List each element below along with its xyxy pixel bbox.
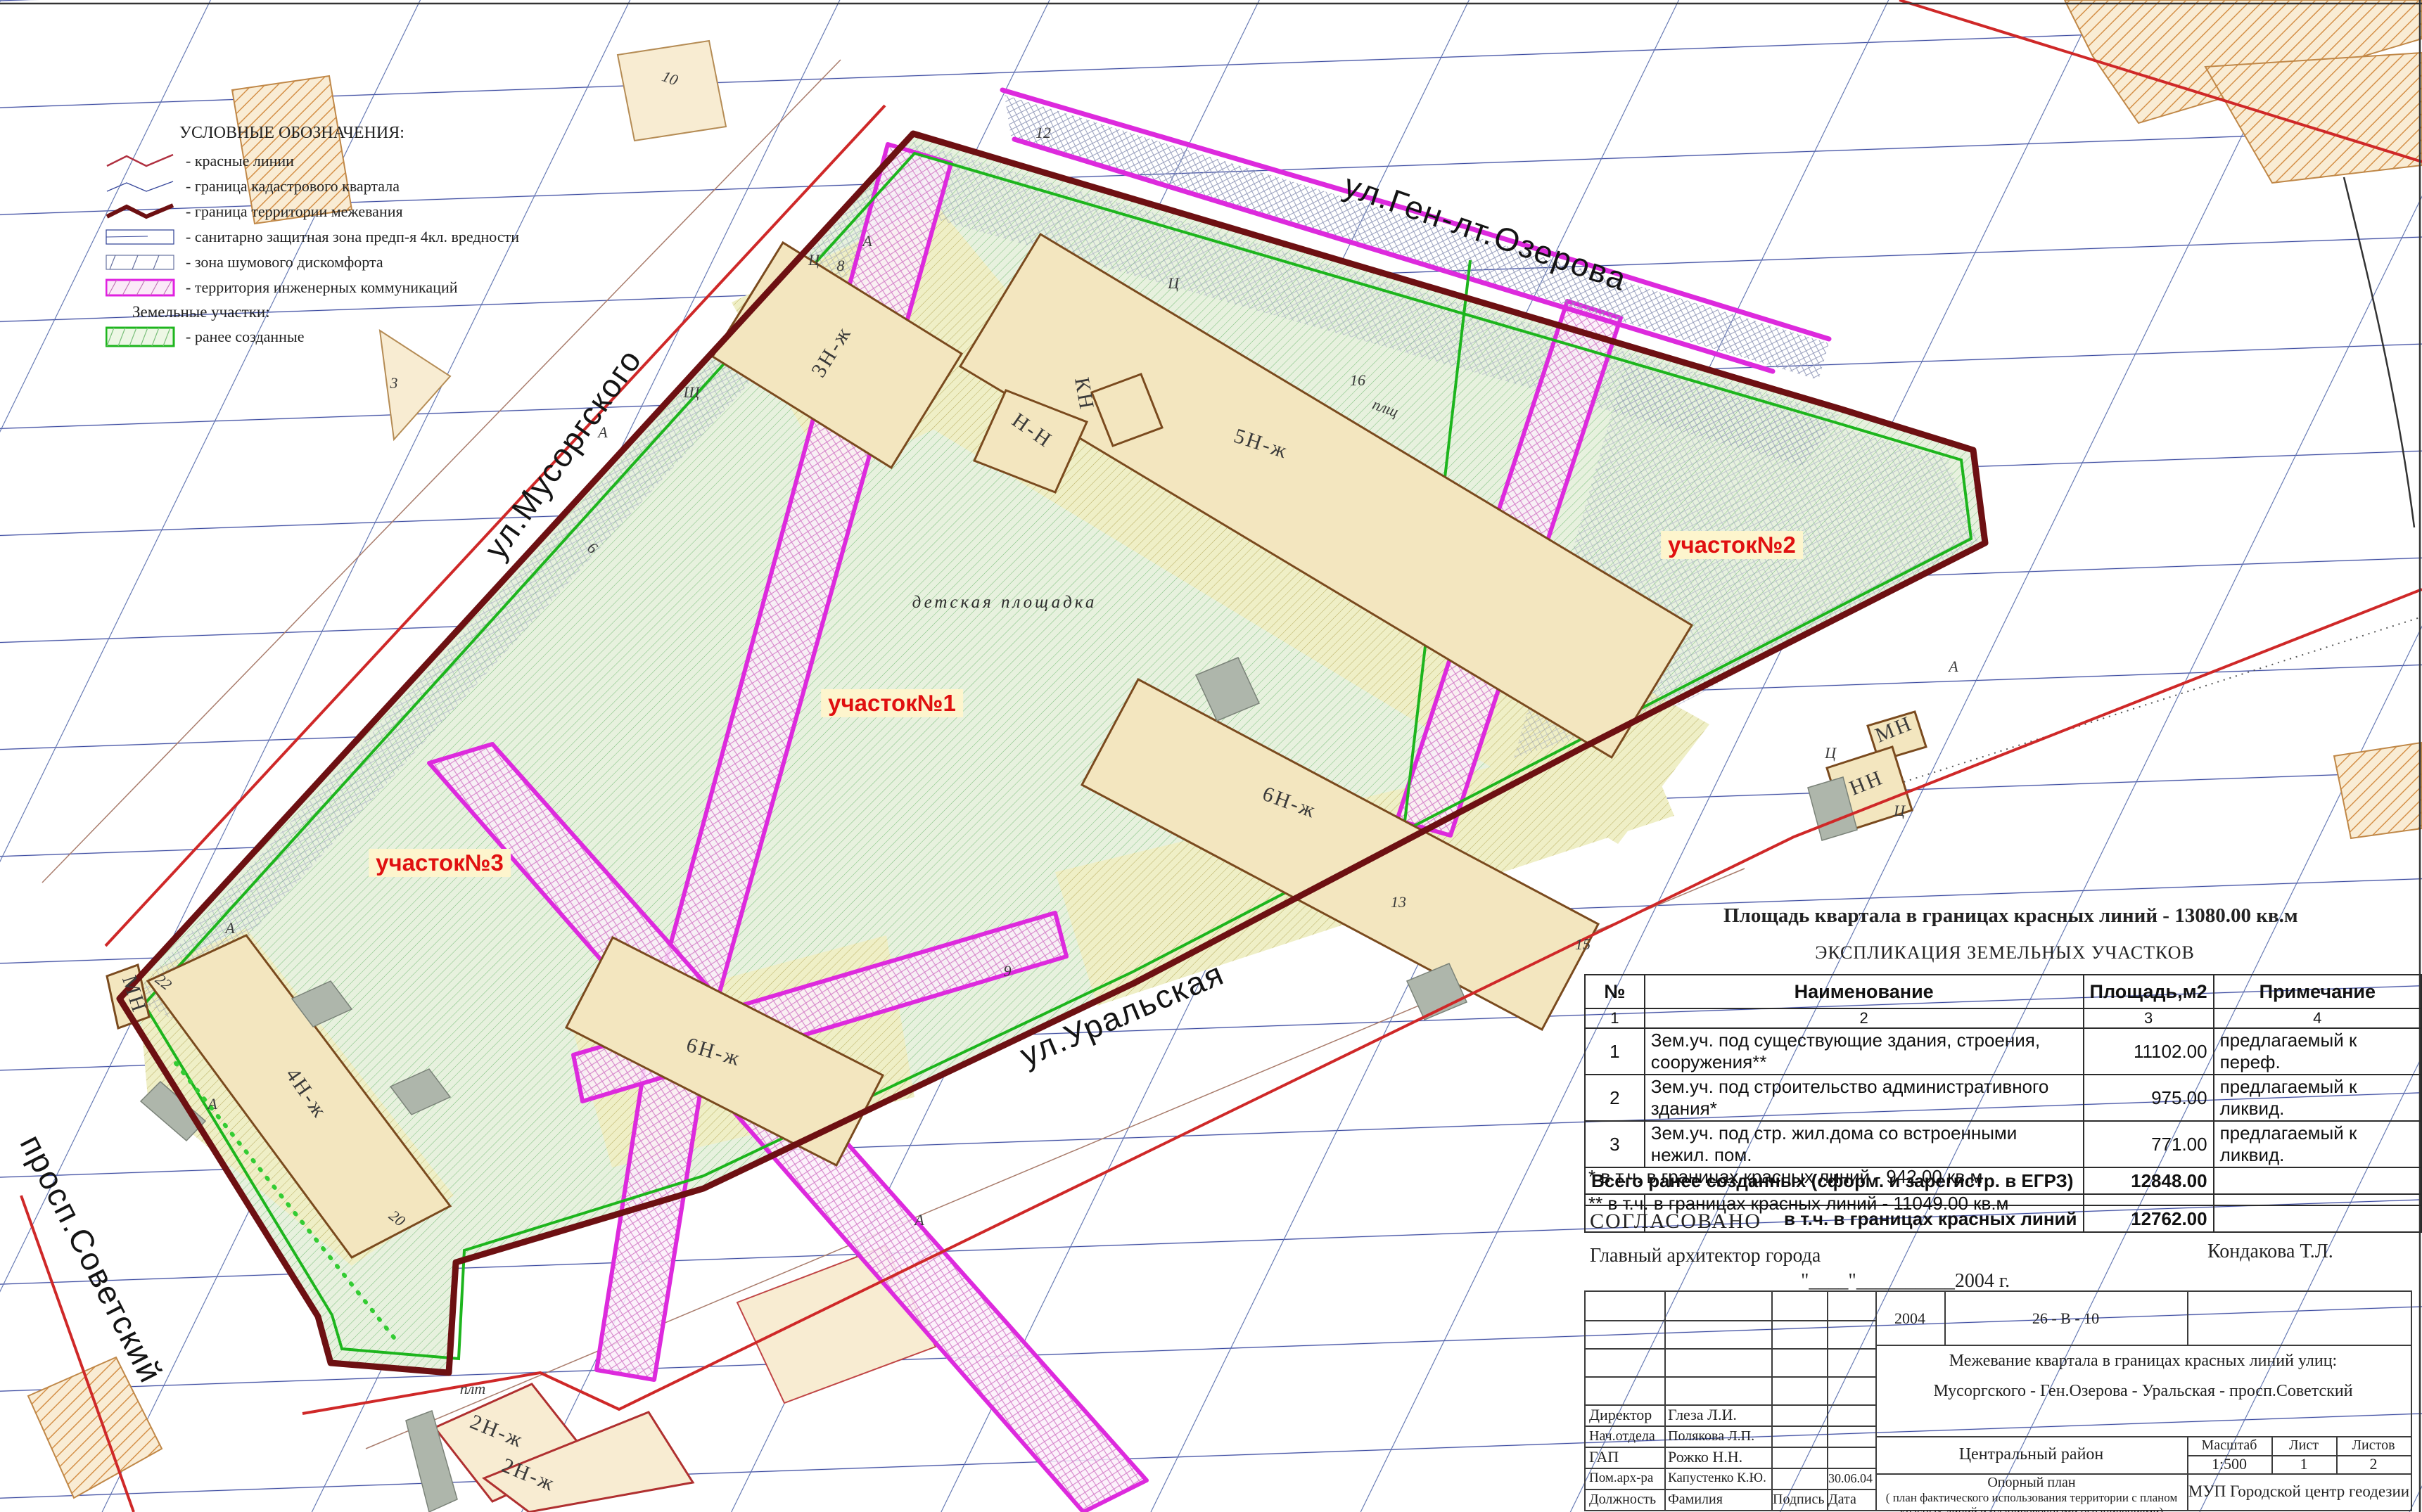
map-letter: Ц	[1167, 274, 1180, 292]
parcel-label-1: участок№1	[821, 689, 963, 717]
tb-scale-value: 1:500	[2187, 1455, 2271, 1473]
tb-role: Нач.отдела	[1586, 1425, 1668, 1447]
parcel-label-3: участок№3	[369, 849, 511, 877]
map-number: 15	[1575, 935, 1591, 953]
red-zigzag-icon	[106, 152, 176, 170]
map-number: 9	[1004, 962, 1012, 980]
tb-footer-role: Должность	[1586, 1489, 1668, 1510]
playground-label: детская площадка	[912, 593, 1097, 613]
tb-footer-name: Фамилия	[1664, 1489, 1775, 1510]
cadastral-plan-page: 3Н-ж 5Н-ж 6Н-ж 6Н-ж 4Н-ж 2Н-ж 2Н-ж Н-Н К…	[0, 0, 2422, 1512]
label-plt: плт	[460, 1380, 485, 1397]
legend-title: УСЛОВНЫЕ ОБОЗНАЧЕНИЯ:	[179, 124, 591, 143]
map-number: 8	[837, 257, 845, 274]
table-row: 1 Зем.уч. под существующие здания, строе…	[1585, 1028, 2421, 1075]
map-letter: А	[913, 1211, 924, 1229]
parcel-label-2: участок№2	[1661, 531, 1803, 559]
map-letter: Щ	[683, 383, 701, 401]
tb-name: Глеза Л.И.	[1664, 1404, 1775, 1425]
legend-item-red-lines: - красные линии	[106, 148, 591, 174]
cell-empty	[2214, 1167, 2421, 1194]
cell-name: Зем.уч. под строительство административн…	[1645, 1075, 2084, 1121]
tb-footer-date: Дата	[1827, 1489, 1877, 1510]
tb-name: Рожко Н.Н.	[1664, 1447, 1775, 1468]
colnum: 3	[2084, 1008, 2214, 1028]
tb-sheet-value: 1	[2271, 1455, 2336, 1473]
legend-label: - ранее созданные	[186, 328, 305, 346]
tb-subject-2: Мусоргского - Ген.Озерова - Уральская - …	[1875, 1382, 2411, 1401]
cell-note: предлагаемый к ликвид.	[2214, 1075, 2421, 1121]
map-number: 3	[390, 374, 398, 392]
cell-name: Зем.уч. под существующие здания, строени…	[1645, 1028, 2084, 1075]
cell-area: 11102.00	[2084, 1028, 2214, 1075]
table-row: 2 Зем.уч. под строительство администрати…	[1585, 1075, 2421, 1121]
approval-date-line: "____"__________2004 г.	[1801, 1270, 2010, 1293]
dark-red-zigzag-icon	[106, 203, 176, 221]
subtotal-value: 12762.00	[2084, 1205, 2214, 1232]
table-colnum-row: 1 2 3 4	[1585, 1008, 2421, 1028]
building-10	[618, 41, 726, 141]
colnum: 1	[1585, 1008, 1645, 1028]
tb-role: ГАП	[1586, 1447, 1668, 1468]
map-number: 16	[1350, 371, 1365, 389]
tb-subject-1: Межевание квартала в границах красных ли…	[1875, 1352, 2411, 1371]
tb-plan-title: Опорный план	[1881, 1475, 2182, 1491]
footnote-1: * в т.ч. в границах красных линий - 942.…	[1588, 1166, 1982, 1188]
col-header-num: №	[1585, 975, 1645, 1008]
tb-sheets-label: Листов	[2336, 1436, 2411, 1455]
tb-role: Директор	[1586, 1404, 1668, 1425]
map-letter: А	[861, 232, 872, 250]
cell-empty	[2214, 1205, 2421, 1232]
legend-item-sanitary-zone: - санитарно защитная зона предп-я 4кл. в…	[106, 224, 591, 250]
colnum: 2	[1645, 1008, 2084, 1028]
cell-name: Зем.уч. под стр. жил.дома со встроенными…	[1645, 1121, 2084, 1167]
total-value: 12848.00	[2084, 1167, 2214, 1194]
col-header-name: Наименование	[1645, 975, 2084, 1008]
tb-year: 2004	[1875, 1292, 1944, 1345]
map-letter: Ц	[1893, 802, 1906, 819]
col-header-note: Примечание	[2214, 975, 2421, 1008]
tb-sheets-value: 2	[2336, 1455, 2411, 1473]
col-header-area: Площадь,м2	[2084, 975, 2214, 1008]
tb-scale-label: Масштаб	[2187, 1436, 2271, 1455]
map-letter: А	[206, 1095, 217, 1113]
legend-item-cadastral-border: - граница кадастрового квартала	[106, 174, 591, 199]
title-block: 2004 26 - В - 10 Межевание квартала в гр…	[1584, 1290, 2412, 1511]
legend-label: - санитарно защитная зона предп-я 4кл. в…	[186, 228, 519, 246]
legend: УСЛОВНЫЕ ОБОЗНАЧЕНИЯ: - красные линии - …	[106, 124, 591, 350]
blue-zigzag-icon	[106, 177, 176, 196]
cell-note: предлагаемый к переф.	[2214, 1028, 2421, 1075]
map-letter: А	[1947, 658, 1958, 675]
approver-role: Главный архитектор города	[1590, 1245, 1821, 1267]
tb-code: 26 - В - 10	[1944, 1292, 2187, 1345]
tb-role: Пом.арх-ра	[1586, 1468, 1668, 1489]
legend-item-surveying-border: - граница территории межевания	[106, 199, 591, 224]
map-number: 12	[1035, 124, 1051, 141]
map-letter: Ц	[808, 251, 820, 269]
legend-label: - территория инженерных коммуникаций	[186, 278, 458, 297]
communications-icon	[106, 278, 176, 297]
tb-footer-sign: Подпись	[1771, 1489, 1828, 1510]
noise-zone-icon	[106, 253, 176, 271]
tb-plan-subtitle: ( план фактического использования террит…	[1881, 1491, 2182, 1512]
tb-name: Полякова Л.П.	[1664, 1425, 1775, 1447]
cell-area: 975.00	[2084, 1075, 2214, 1121]
table-header-row: № Наименование Площадь,м2 Примечание	[1585, 975, 2421, 1008]
table-row: 3 Зем.уч. под стр. жил.дома со встроенны…	[1585, 1121, 2421, 1167]
legend-item-noise-zone: - зона шумового дискомфорта	[106, 250, 591, 275]
tb-date: 30.06.04	[1827, 1468, 1877, 1489]
cell-area: 771.00	[2084, 1121, 2214, 1167]
tb-sheet-label: Лист	[2271, 1436, 2336, 1455]
legend-item-previously-created: - ранее созданные	[106, 324, 591, 350]
colnum: 4	[2214, 1008, 2421, 1028]
map-number: 13	[1391, 893, 1406, 911]
tb-org: МУП Городской центр геодезии	[2187, 1473, 2411, 1510]
cell-note: предлагаемый к ликвид.	[2214, 1121, 2421, 1167]
tb-district: Центральный район	[1875, 1436, 2187, 1473]
tb-name: Капустенко К.Ю.	[1664, 1468, 1775, 1489]
approver-name: Кондакова Т.Л.	[2207, 1241, 2333, 1263]
sanitary-zone-icon	[106, 228, 176, 246]
legend-item-communications: - территория инженерных коммуникаций	[106, 275, 591, 300]
cell-num: 2	[1585, 1075, 1645, 1121]
legend-label: - граница территории межевания	[186, 203, 403, 221]
legend-label: - зона шумового дискомфорта	[186, 253, 383, 271]
explication-title: ЭКСПЛИКАЦИЯ ЗЕМЕЛЬНЫХ УЧАСТКОВ	[1723, 942, 2286, 963]
legend-subtitle: Земельные участки:	[132, 300, 591, 324]
map-letter: Ц	[1824, 744, 1837, 762]
cell-num: 3	[1585, 1121, 1645, 1167]
area-title: Площадь квартала в границах красных лини…	[1723, 904, 2286, 928]
previously-created-icon	[106, 326, 176, 347]
legend-label: - красные линии	[186, 152, 294, 170]
agreed-label: СОГЛАСОВАНО	[1590, 1210, 1761, 1234]
legend-label: - граница кадастрового квартала	[186, 177, 400, 196]
cell-num: 1	[1585, 1028, 1645, 1075]
map-letter: А	[224, 919, 235, 937]
